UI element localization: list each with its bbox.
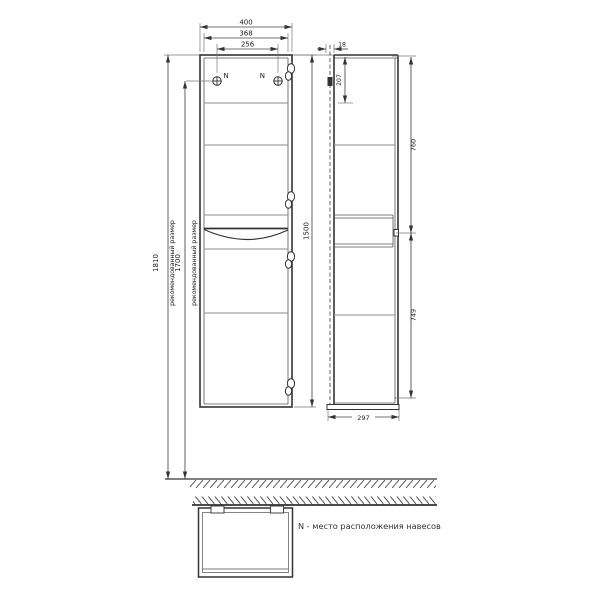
curved-handle-profile bbox=[204, 230, 288, 240]
svg-text:1500: 1500 bbox=[303, 222, 311, 240]
dim-depth: 297 bbox=[328, 410, 399, 422]
front-cabinet-outline bbox=[200, 55, 292, 407]
hanger-mark-left: N bbox=[224, 72, 229, 80]
svg-text:749: 749 bbox=[410, 309, 418, 321]
front-view: N N 400 368 256 1500 bbox=[152, 19, 334, 480]
hanger-clip-icon bbox=[271, 506, 284, 513]
dim-hanger-spacing: 256 bbox=[217, 41, 278, 74]
side-base-plate bbox=[327, 405, 399, 410]
svg-text:1810: 1810 bbox=[152, 254, 160, 272]
hinge-icon bbox=[285, 252, 294, 269]
top-view-cabinet-outline bbox=[199, 508, 293, 577]
dim-hanger-offset: 207 bbox=[336, 57, 353, 103]
wall-bracket-icon bbox=[328, 77, 333, 86]
dim-wall-offset: 18 bbox=[317, 42, 348, 54]
hanger-screw-icon bbox=[212, 76, 222, 86]
floor-hatch bbox=[190, 480, 436, 488]
svg-text:400: 400 bbox=[239, 19, 252, 27]
top-view: N - место расположения навесов bbox=[192, 497, 441, 578]
svg-text:760: 760 bbox=[410, 139, 418, 151]
svg-text:368: 368 bbox=[239, 30, 252, 38]
hanger-note: N - место расположения навесов bbox=[298, 521, 441, 531]
hanger-clip-icon bbox=[211, 506, 224, 513]
recommended-size-label: рекомендованный размер bbox=[190, 220, 198, 306]
hinge-icon bbox=[285, 192, 294, 209]
svg-text:1700: 1700 bbox=[174, 254, 182, 272]
handle-recess bbox=[334, 215, 399, 247]
svg-text:207: 207 bbox=[336, 74, 343, 86]
side-view: 18 207 760 749 297 bbox=[317, 42, 418, 423]
hinge-icon bbox=[285, 379, 294, 396]
svg-text:18: 18 bbox=[338, 42, 346, 49]
cabinet-technical-drawing: N N 400 368 256 1500 bbox=[0, 0, 600, 600]
technical-drawing-page: N N 400 368 256 1500 bbox=[0, 0, 600, 600]
dim-cabinet-height: 1500 bbox=[294, 55, 316, 407]
dim-upper-section: 760 bbox=[392, 56, 418, 233]
wall-hatch bbox=[193, 497, 436, 505]
hinge-icon bbox=[285, 64, 294, 81]
hanger-mark-right: N bbox=[260, 72, 265, 80]
hanger-screw-icon bbox=[273, 76, 283, 86]
svg-text:256: 256 bbox=[241, 41, 255, 49]
dim-hanger-height: 1700 рекомендованный размер bbox=[174, 81, 213, 479]
floor bbox=[165, 479, 437, 488]
svg-text:297: 297 bbox=[357, 414, 369, 422]
dim-overall-height: 1810 рекомендованный размер bbox=[152, 55, 176, 479]
